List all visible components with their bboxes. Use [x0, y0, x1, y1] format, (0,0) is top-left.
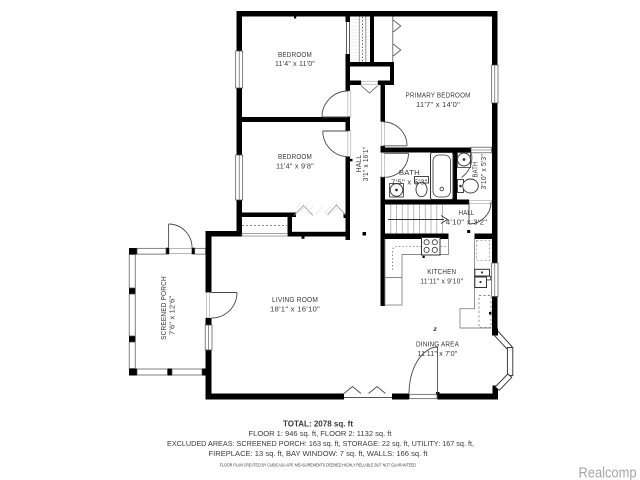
- svg-text:HALL: HALL: [459, 208, 475, 217]
- svg-text:BATH: BATH: [399, 168, 420, 177]
- svg-text:Realcomp: Realcomp: [579, 466, 637, 480]
- svg-text:11'11" x 7'0": 11'11" x 7'0": [418, 349, 458, 358]
- svg-text:11'4" x 9'8": 11'4" x 9'8": [276, 162, 314, 171]
- svg-text:18'1" x 16'10": 18'1" x 16'10": [270, 304, 320, 313]
- svg-text:KITCHEN: KITCHEN: [427, 267, 456, 276]
- svg-text:BEDROOM: BEDROOM: [278, 50, 312, 59]
- svg-text:LIVING ROOM: LIVING ROOM: [272, 295, 318, 304]
- svg-text:11'7" x 14'0": 11'7" x 14'0": [416, 100, 460, 109]
- svg-text:FLOOR PLAN CREATED BY CUBICASA: FLOOR PLAN CREATED BY CUBICASA APP. MEAS…: [220, 462, 416, 467]
- svg-text:FIREPLACE: 13 sq. ft, BAY WIND: FIREPLACE: 13 sq. ft, BAY WINDOW: 7 sq. …: [209, 449, 429, 458]
- svg-text:4'10" x 3'2": 4'10" x 3'2": [446, 217, 488, 226]
- svg-text:TOTAL: 2078 sq. ft: TOTAL: 2078 sq. ft: [283, 419, 353, 428]
- svg-text:DINING AREA: DINING AREA: [416, 340, 459, 349]
- svg-text:PRIMARY BEDROOM: PRIMARY BEDROOM: [406, 91, 471, 100]
- svg-text:11'4" x 11'0": 11'4" x 11'0": [275, 59, 315, 68]
- svg-text:11'11" x 9'10": 11'11" x 9'10": [420, 276, 463, 285]
- svg-text:EXCLUDED AREAS: SCREENED PORCH: EXCLUDED AREAS: SCREENED PORCH: 163 sq. …: [167, 439, 474, 448]
- svg-text:BEDROOM: BEDROOM: [278, 152, 312, 161]
- svg-text:7'5" x 5'3": 7'5" x 5'3": [391, 177, 428, 186]
- svg-text:FLOOR 1: 946 sq. ft, FLOOR 2:: FLOOR 1: 946 sq. ft, FLOOR 2: 1132 sq. f…: [249, 429, 393, 438]
